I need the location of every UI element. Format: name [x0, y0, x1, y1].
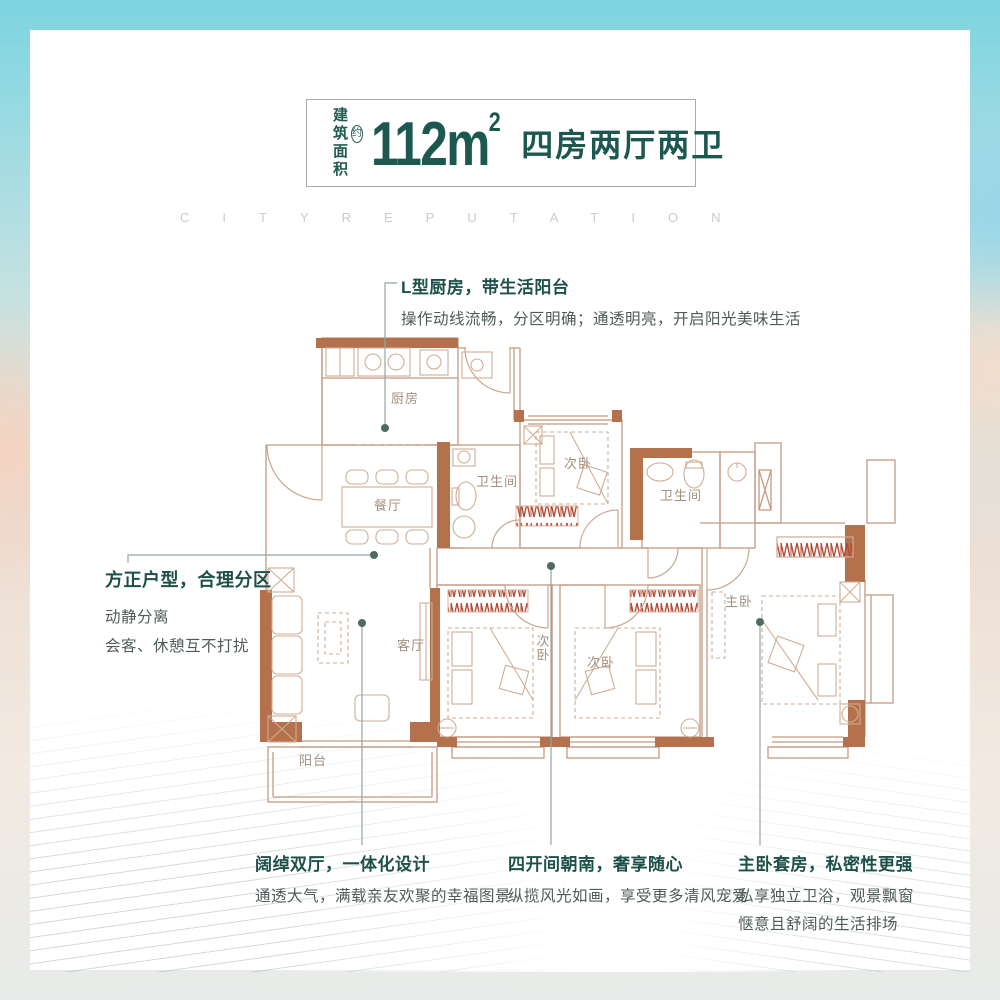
area-label-line1: 建筑: [333, 107, 348, 143]
room-labels: 厨房 餐厅 卫生间 次卧 卫生间 客厅 次卧 次卧 主卧 阳台: [299, 391, 753, 768]
plan-walls: [260, 338, 865, 747]
approx-badge: 约: [351, 125, 363, 143]
annotation-master-line1: 私享独立卫浴，观景飘窗: [738, 884, 914, 906]
room-label-bedroom-left: 次卧: [535, 633, 550, 662]
annotation-layout-title: 方正户型，合理分区: [105, 566, 272, 592]
annotation-south: 四开间朝南，奢享随心 纵揽风光如画，享受更多清风宠爱: [508, 850, 748, 906]
room-label-bath1: 卫生间: [476, 474, 518, 489]
annotation-living-title: 阔绰双厅，一体化设计: [255, 850, 511, 875]
room-label-kitchen: 厨房: [391, 391, 419, 406]
room-label-bedroom-mid: 次卧: [587, 655, 615, 670]
annotation-south-title: 四开间朝南，奢享随心: [508, 850, 748, 875]
annotation-living: 阔绰双厅，一体化设计 通透大气，满载亲友欢聚的幸福图景: [255, 850, 511, 906]
annotation-layout: 方正户型，合理分区 动静分离 会客、休憩互不打扰: [105, 566, 272, 656]
annotation-kitchen: L型厨房，带生活阳台 操作动线流畅，分区明确；通透明亮，开启阳光美味生活: [401, 273, 801, 329]
room-label-master: 主卧: [725, 594, 753, 609]
plan-outlines: [266, 338, 895, 802]
page: { "header": { "area_label_line1": "建筑", …: [0, 0, 1000, 1000]
area-number: 112m: [371, 110, 489, 179]
annotation-master-title: 主卧套房，私密性更强: [738, 850, 914, 875]
area-label-line2: 面积: [333, 143, 348, 179]
plan-furniture: [268, 348, 860, 742]
annotation-living-desc: 通透大气，满载亲友欢聚的幸福图景: [255, 884, 511, 906]
header-area-box: 建筑 面积 约 112m2 四房两厅两卫: [306, 99, 696, 187]
room-label-bedroom-top: 次卧: [564, 456, 592, 471]
area-value: 112m2: [371, 107, 501, 180]
room-label-dining: 餐厅: [374, 498, 402, 513]
annotation-layout-line2: 会客、休憩互不打扰: [105, 634, 272, 656]
annotation-layout-line1: 动静分离: [105, 605, 272, 627]
room-label-balcony: 阳台: [299, 753, 327, 768]
annotation-kitchen-desc: 操作动线流畅，分区明确；通透明亮，开启阳光美味生活: [401, 307, 801, 329]
room-label-bath2: 卫生间: [660, 488, 702, 503]
layout-text: 四房两厅两卫: [521, 120, 725, 166]
area-label: 建筑 面积: [333, 107, 348, 179]
annotation-kitchen-title: L型厨房，带生活阳台: [401, 273, 801, 298]
area-superscript: 2: [489, 107, 501, 137]
annotation-south-desc: 纵揽风光如画，享受更多清风宠爱: [508, 884, 748, 906]
room-label-living: 客厅: [397, 638, 425, 653]
annotation-master: 主卧套房，私密性更强 私享独立卫浴，观景飘窗 惬意且舒阔的生活排场: [738, 850, 914, 934]
annotation-master-line2: 惬意且舒阔的生活排场: [738, 912, 914, 934]
callout-lines: [128, 283, 760, 845]
